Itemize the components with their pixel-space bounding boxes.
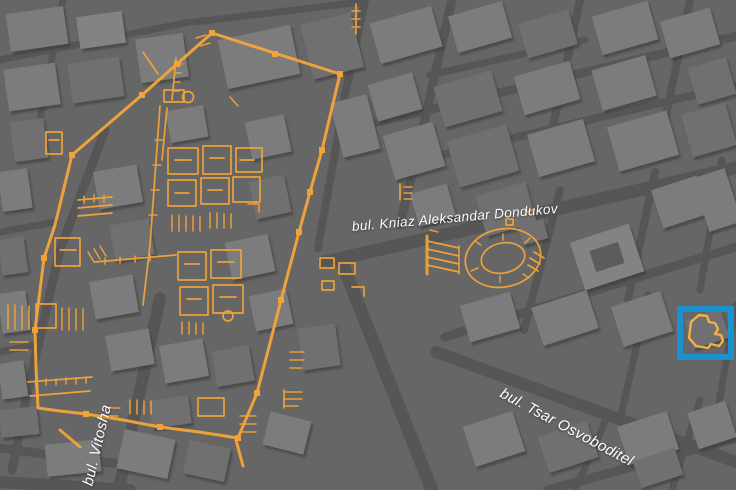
forum-complex-north — [168, 146, 262, 231]
map-canvas[interactable]: bul. Kniaz Aleksandar Dondukov bul. Tsar… — [0, 0, 736, 490]
forum-complex-south — [178, 250, 243, 334]
